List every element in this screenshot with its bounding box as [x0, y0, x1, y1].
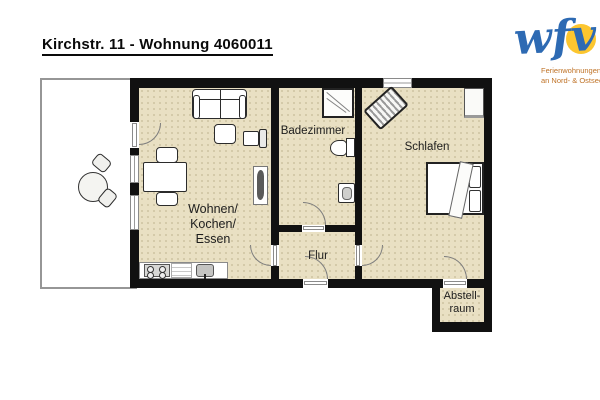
pillow: [469, 190, 481, 212]
toilet-tank: [346, 138, 355, 157]
label-hallway: Flur: [308, 250, 328, 263]
terrace-door-leaf: [132, 123, 137, 147]
label-bedroom: Schlafen: [405, 141, 450, 154]
dining-chair: [156, 192, 178, 206]
stove: [144, 264, 170, 277]
window: [130, 155, 139, 183]
kitchen-drawers: [171, 263, 192, 278]
label-bathroom: Badezimmer: [281, 125, 346, 138]
radiator: [253, 166, 268, 205]
logo-tagline: Ferienwohnungen an Nord- & Ostsee: [541, 66, 600, 85]
armchair: [243, 131, 259, 146]
label-storage: Abstell- raum: [444, 290, 481, 316]
floor-plan-page: Kirchstr. 11 - Wohnung 4060011 wfv Ferie…: [0, 0, 600, 400]
storage-door-leaf: [444, 281, 466, 285]
shower: [322, 88, 354, 118]
bedroom-door-leaf: [356, 245, 360, 266]
logo-tagline-line2: an Nord- & Ostsee: [541, 76, 600, 86]
logo-tagline-line1: Ferienwohnungen: [541, 66, 600, 76]
dining-table: [143, 162, 187, 192]
sofa: [192, 89, 247, 119]
wfv-logo: wfv: [513, 14, 598, 62]
dining-chair: [156, 147, 178, 163]
label-living: Wohnen/ Kochen/ Essen: [188, 202, 238, 247]
armchair-back: [259, 129, 267, 148]
bathroom-door-leaf: [303, 226, 324, 230]
window: [383, 78, 412, 88]
page-title: Kirchstr. 11 - Wohnung 4060011: [42, 36, 273, 56]
entrance-door-leaf: [304, 281, 327, 285]
coffee-table: [214, 124, 236, 144]
living-hall-door-leaf: [273, 245, 277, 266]
washbasin: [338, 183, 355, 203]
window: [130, 195, 139, 230]
faucet-icon: [204, 274, 206, 279]
wardrobe: [464, 88, 484, 118]
double-bed: [426, 162, 484, 215]
